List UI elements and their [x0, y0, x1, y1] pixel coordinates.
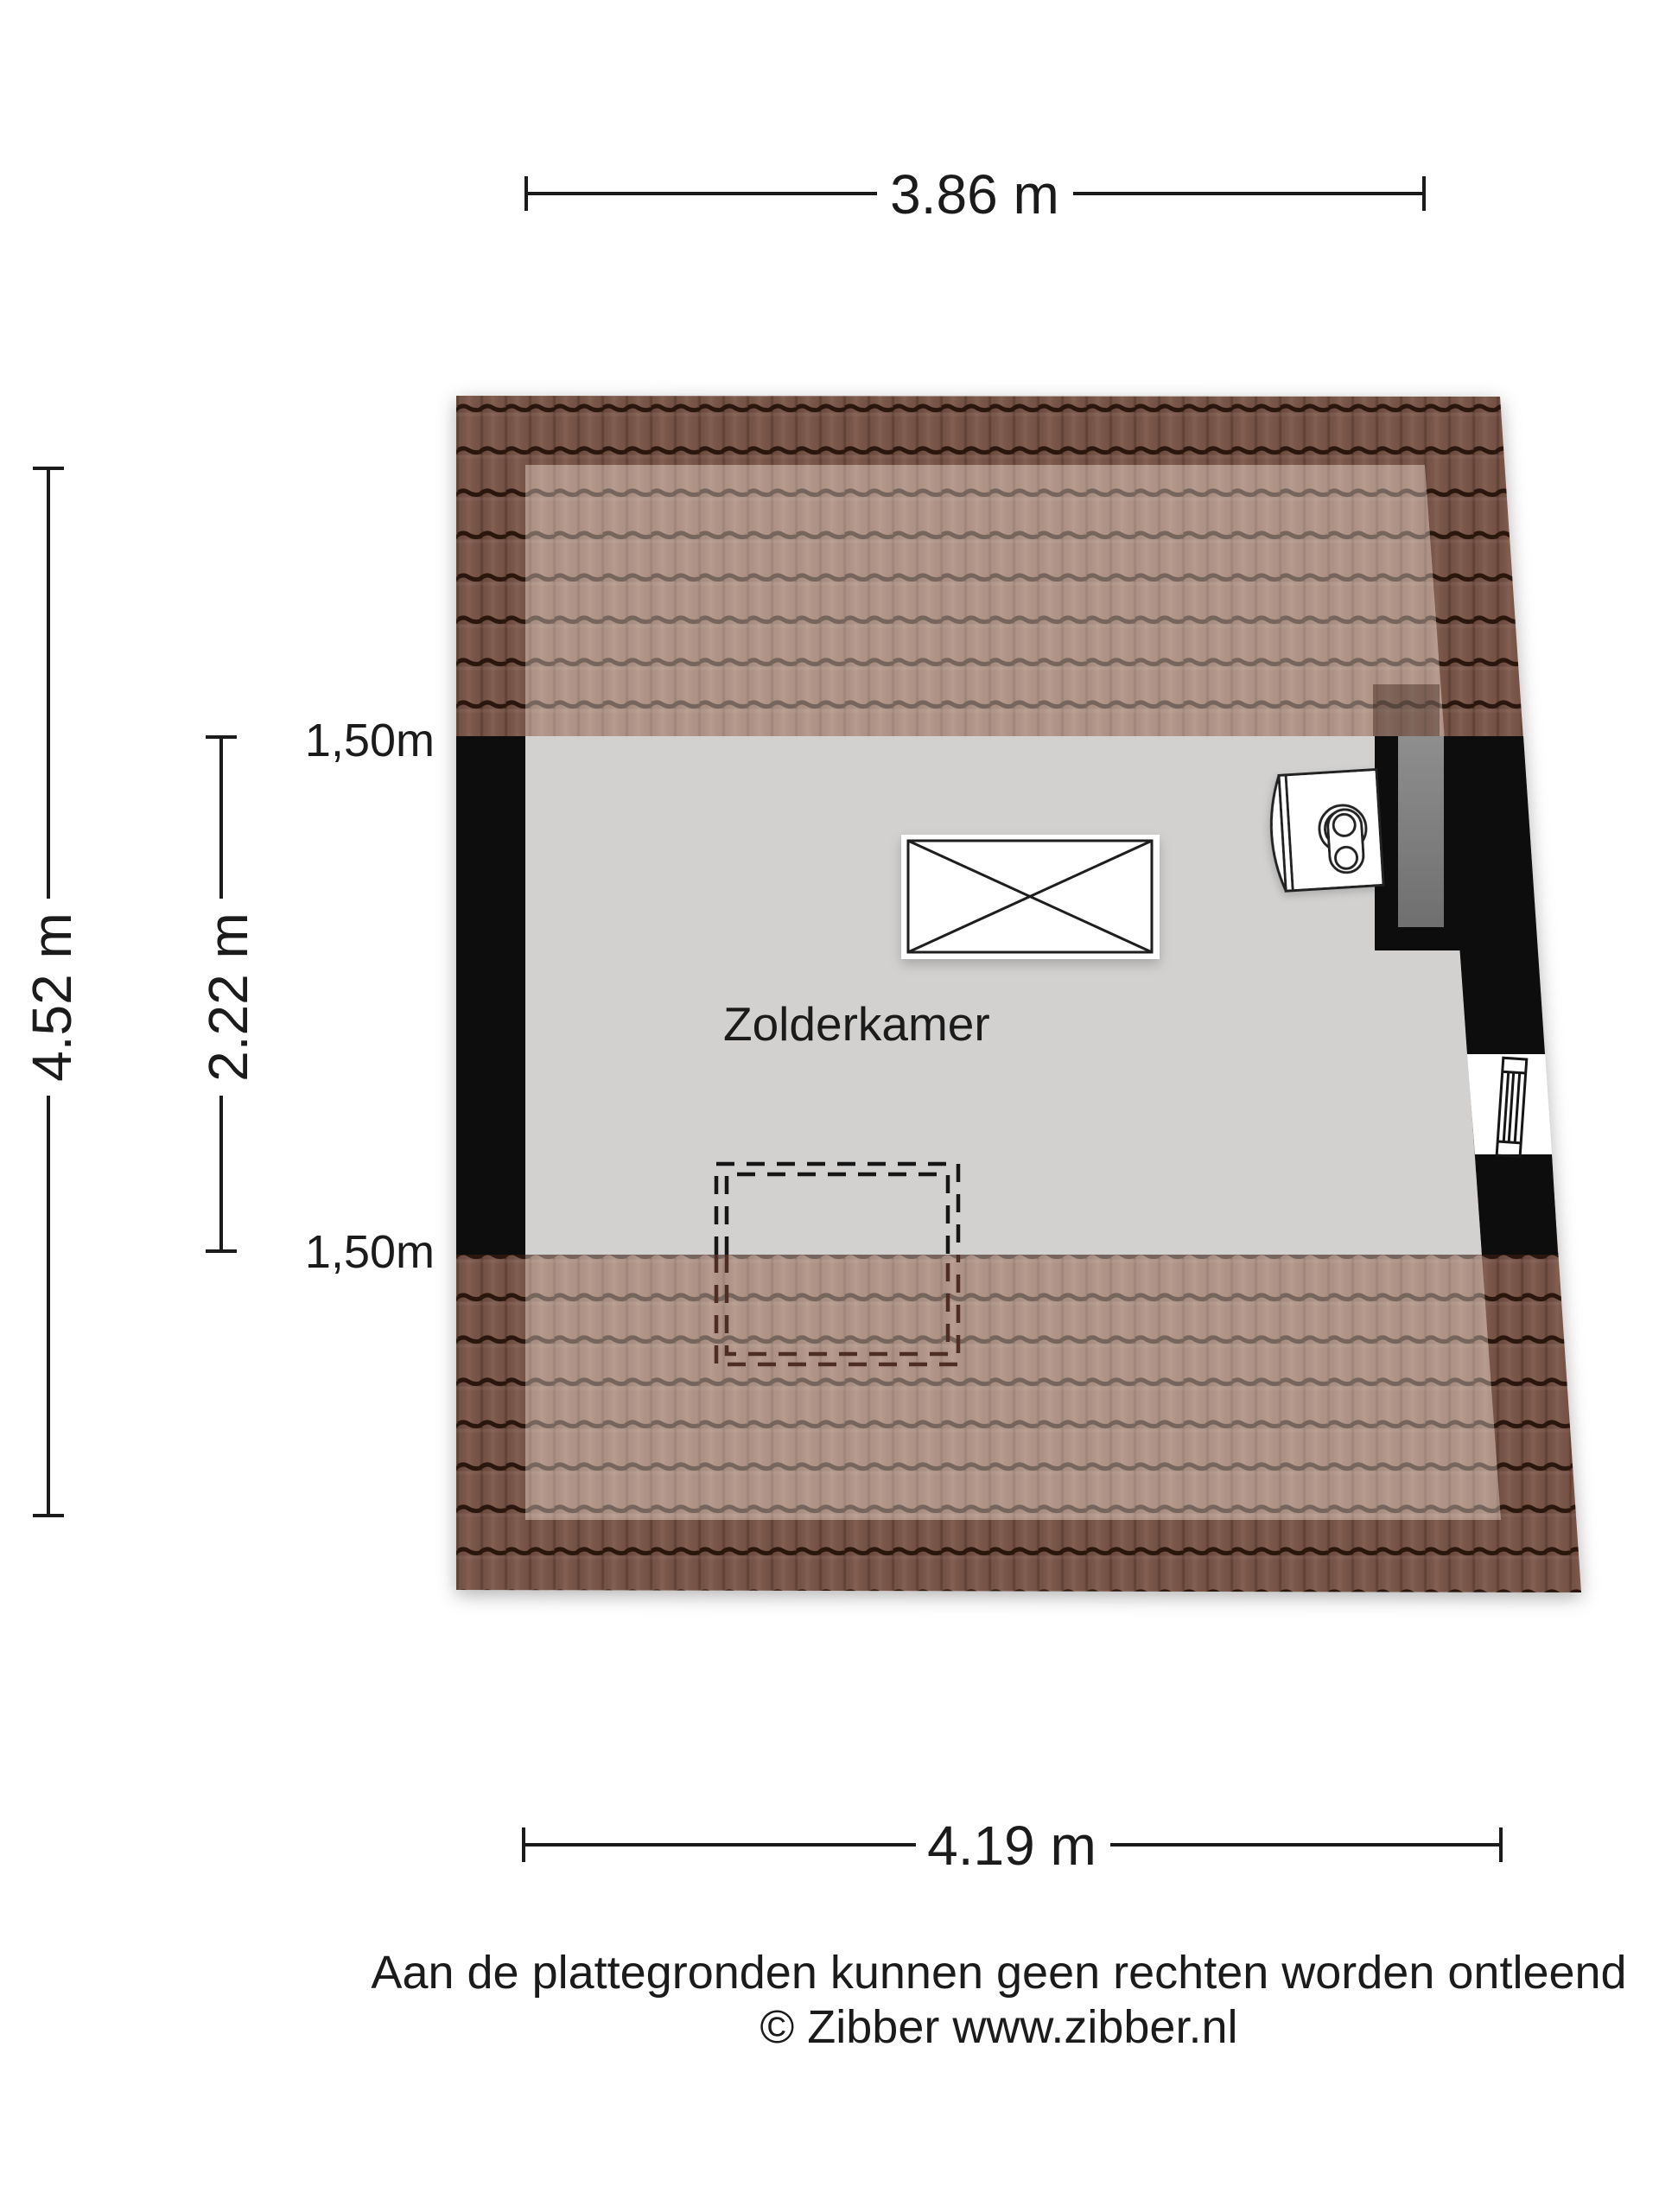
svg-text:Aan de plattegronden kunnen ge: Aan de plattegronden kunnen geen rechten…	[371, 1947, 1626, 1999]
svg-text:3.86 m: 3.86 m	[890, 163, 1059, 226]
svg-text:1,50m: 1,50m	[305, 715, 435, 766]
svg-text:Zolderkamer: Zolderkamer	[723, 997, 990, 1051]
svg-text:4.52 m: 4.52 m	[21, 912, 83, 1082]
svg-text:© Zibber www.zibber.nl: © Zibber www.zibber.nl	[760, 2001, 1238, 2053]
svg-text:1,50m: 1,50m	[305, 1226, 435, 1278]
svg-text:2.22 m: 2.22 m	[197, 912, 259, 1082]
svg-text:4.19 m: 4.19 m	[927, 1815, 1096, 1877]
